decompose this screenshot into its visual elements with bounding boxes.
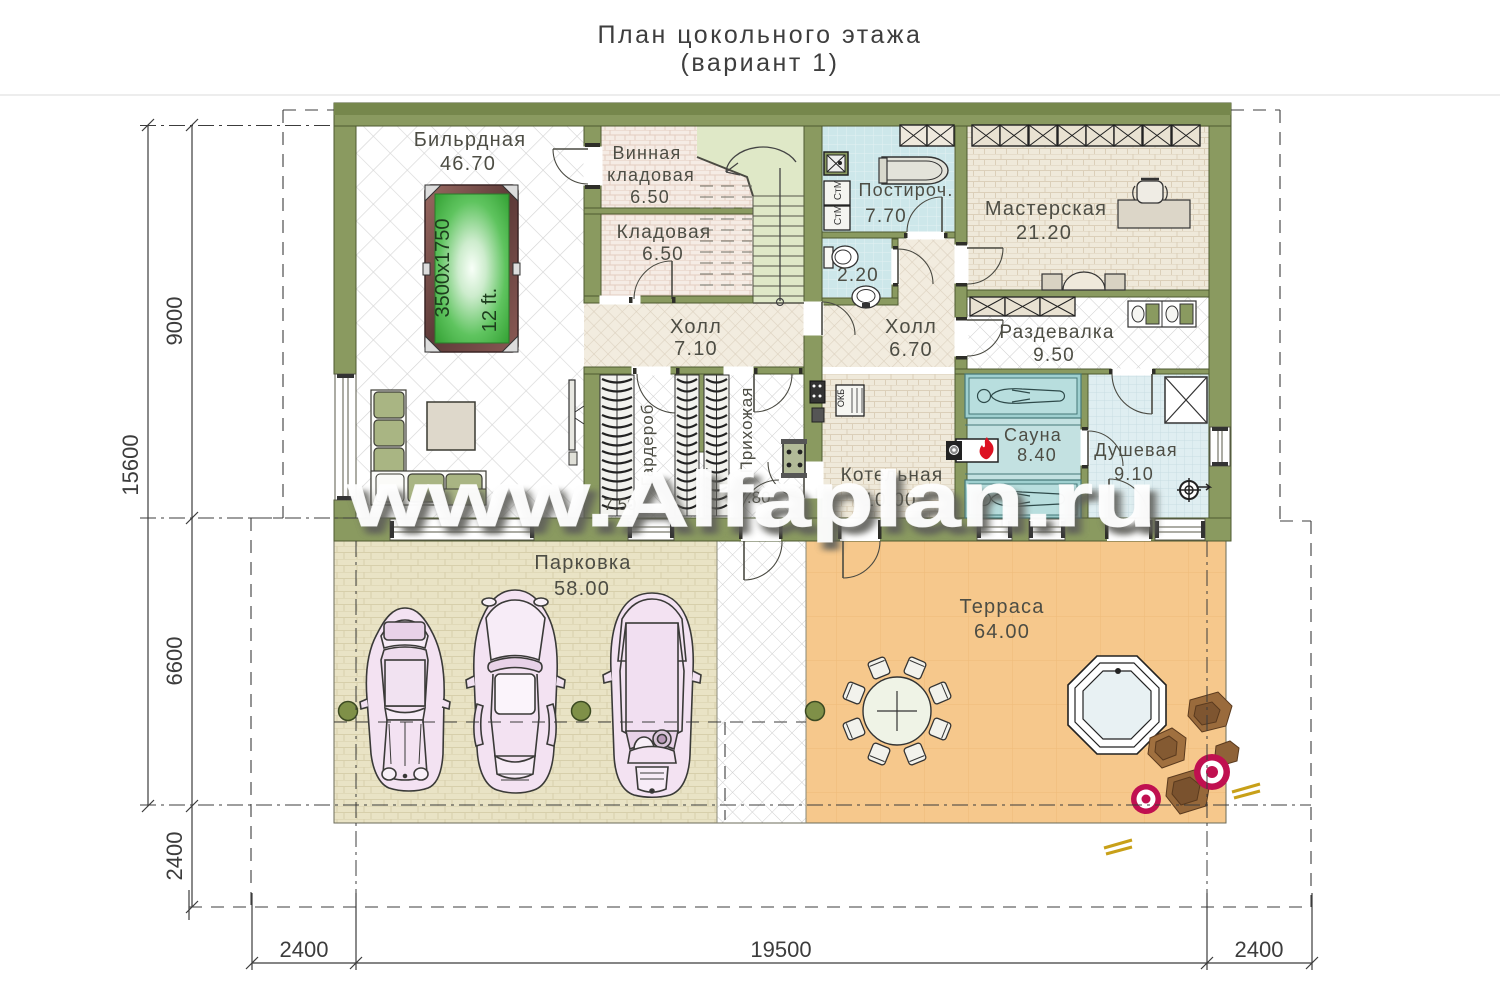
svg-text:19500: 19500 <box>750 937 811 962</box>
svg-text:Мастерская: Мастерская <box>985 198 1107 220</box>
svg-text:Кладовая: Кладовая <box>617 222 712 243</box>
svg-text:9000: 9000 <box>162 297 187 346</box>
svg-text:6.50: 6.50 <box>630 187 670 207</box>
svg-text:СтМ: СтМ <box>833 180 844 200</box>
svg-text:3500х1750: 3500х1750 <box>432 219 454 318</box>
svg-text:6600: 6600 <box>162 637 187 686</box>
svg-text:ОКБ: ОКБ <box>836 389 846 407</box>
svg-text:21.20: 21.20 <box>1016 222 1072 244</box>
svg-text:2400: 2400 <box>1235 937 1284 962</box>
svg-text:СтМ: СтМ <box>833 205 844 225</box>
svg-text:2400: 2400 <box>162 832 187 881</box>
svg-text:Холл: Холл <box>670 316 722 338</box>
svg-text:Винная: Винная <box>613 143 682 163</box>
svg-text:7.70: 7.70 <box>865 206 907 227</box>
svg-text:6.70: 6.70 <box>889 339 933 361</box>
svg-text:46.70: 46.70 <box>440 153 496 175</box>
svg-text:Постироч.: Постироч. <box>858 180 953 200</box>
svg-text:6.50: 6.50 <box>642 244 684 265</box>
svg-text:кладовая: кладовая <box>607 165 695 185</box>
svg-text:План цокольного этажа: План цокольного этажа <box>598 21 923 49</box>
svg-text:Сауна: Сауна <box>1004 425 1062 445</box>
svg-text:9.50: 9.50 <box>1033 345 1075 366</box>
svg-text:Бильрдная: Бильрдная <box>414 129 527 151</box>
svg-text:Холл: Холл <box>885 316 937 338</box>
svg-text:(вариант 1): (вариант 1) <box>681 49 840 77</box>
svg-text:Парковка: Парковка <box>534 552 631 574</box>
svg-text:Терраса: Терраса <box>959 596 1044 618</box>
svg-text:58.00: 58.00 <box>554 578 610 600</box>
svg-text:7.10: 7.10 <box>674 338 718 360</box>
svg-text:64.00: 64.00 <box>974 621 1030 643</box>
svg-text:15600: 15600 <box>118 434 143 495</box>
svg-text:12 ft.: 12 ft. <box>479 288 501 332</box>
svg-text:www.Alfaplan.ru: www.Alfaplan.ru <box>346 456 1156 543</box>
svg-text:2400: 2400 <box>280 937 329 962</box>
svg-text:2.20: 2.20 <box>837 265 879 286</box>
svg-text:Раздевалка: Раздевалка <box>999 322 1114 343</box>
